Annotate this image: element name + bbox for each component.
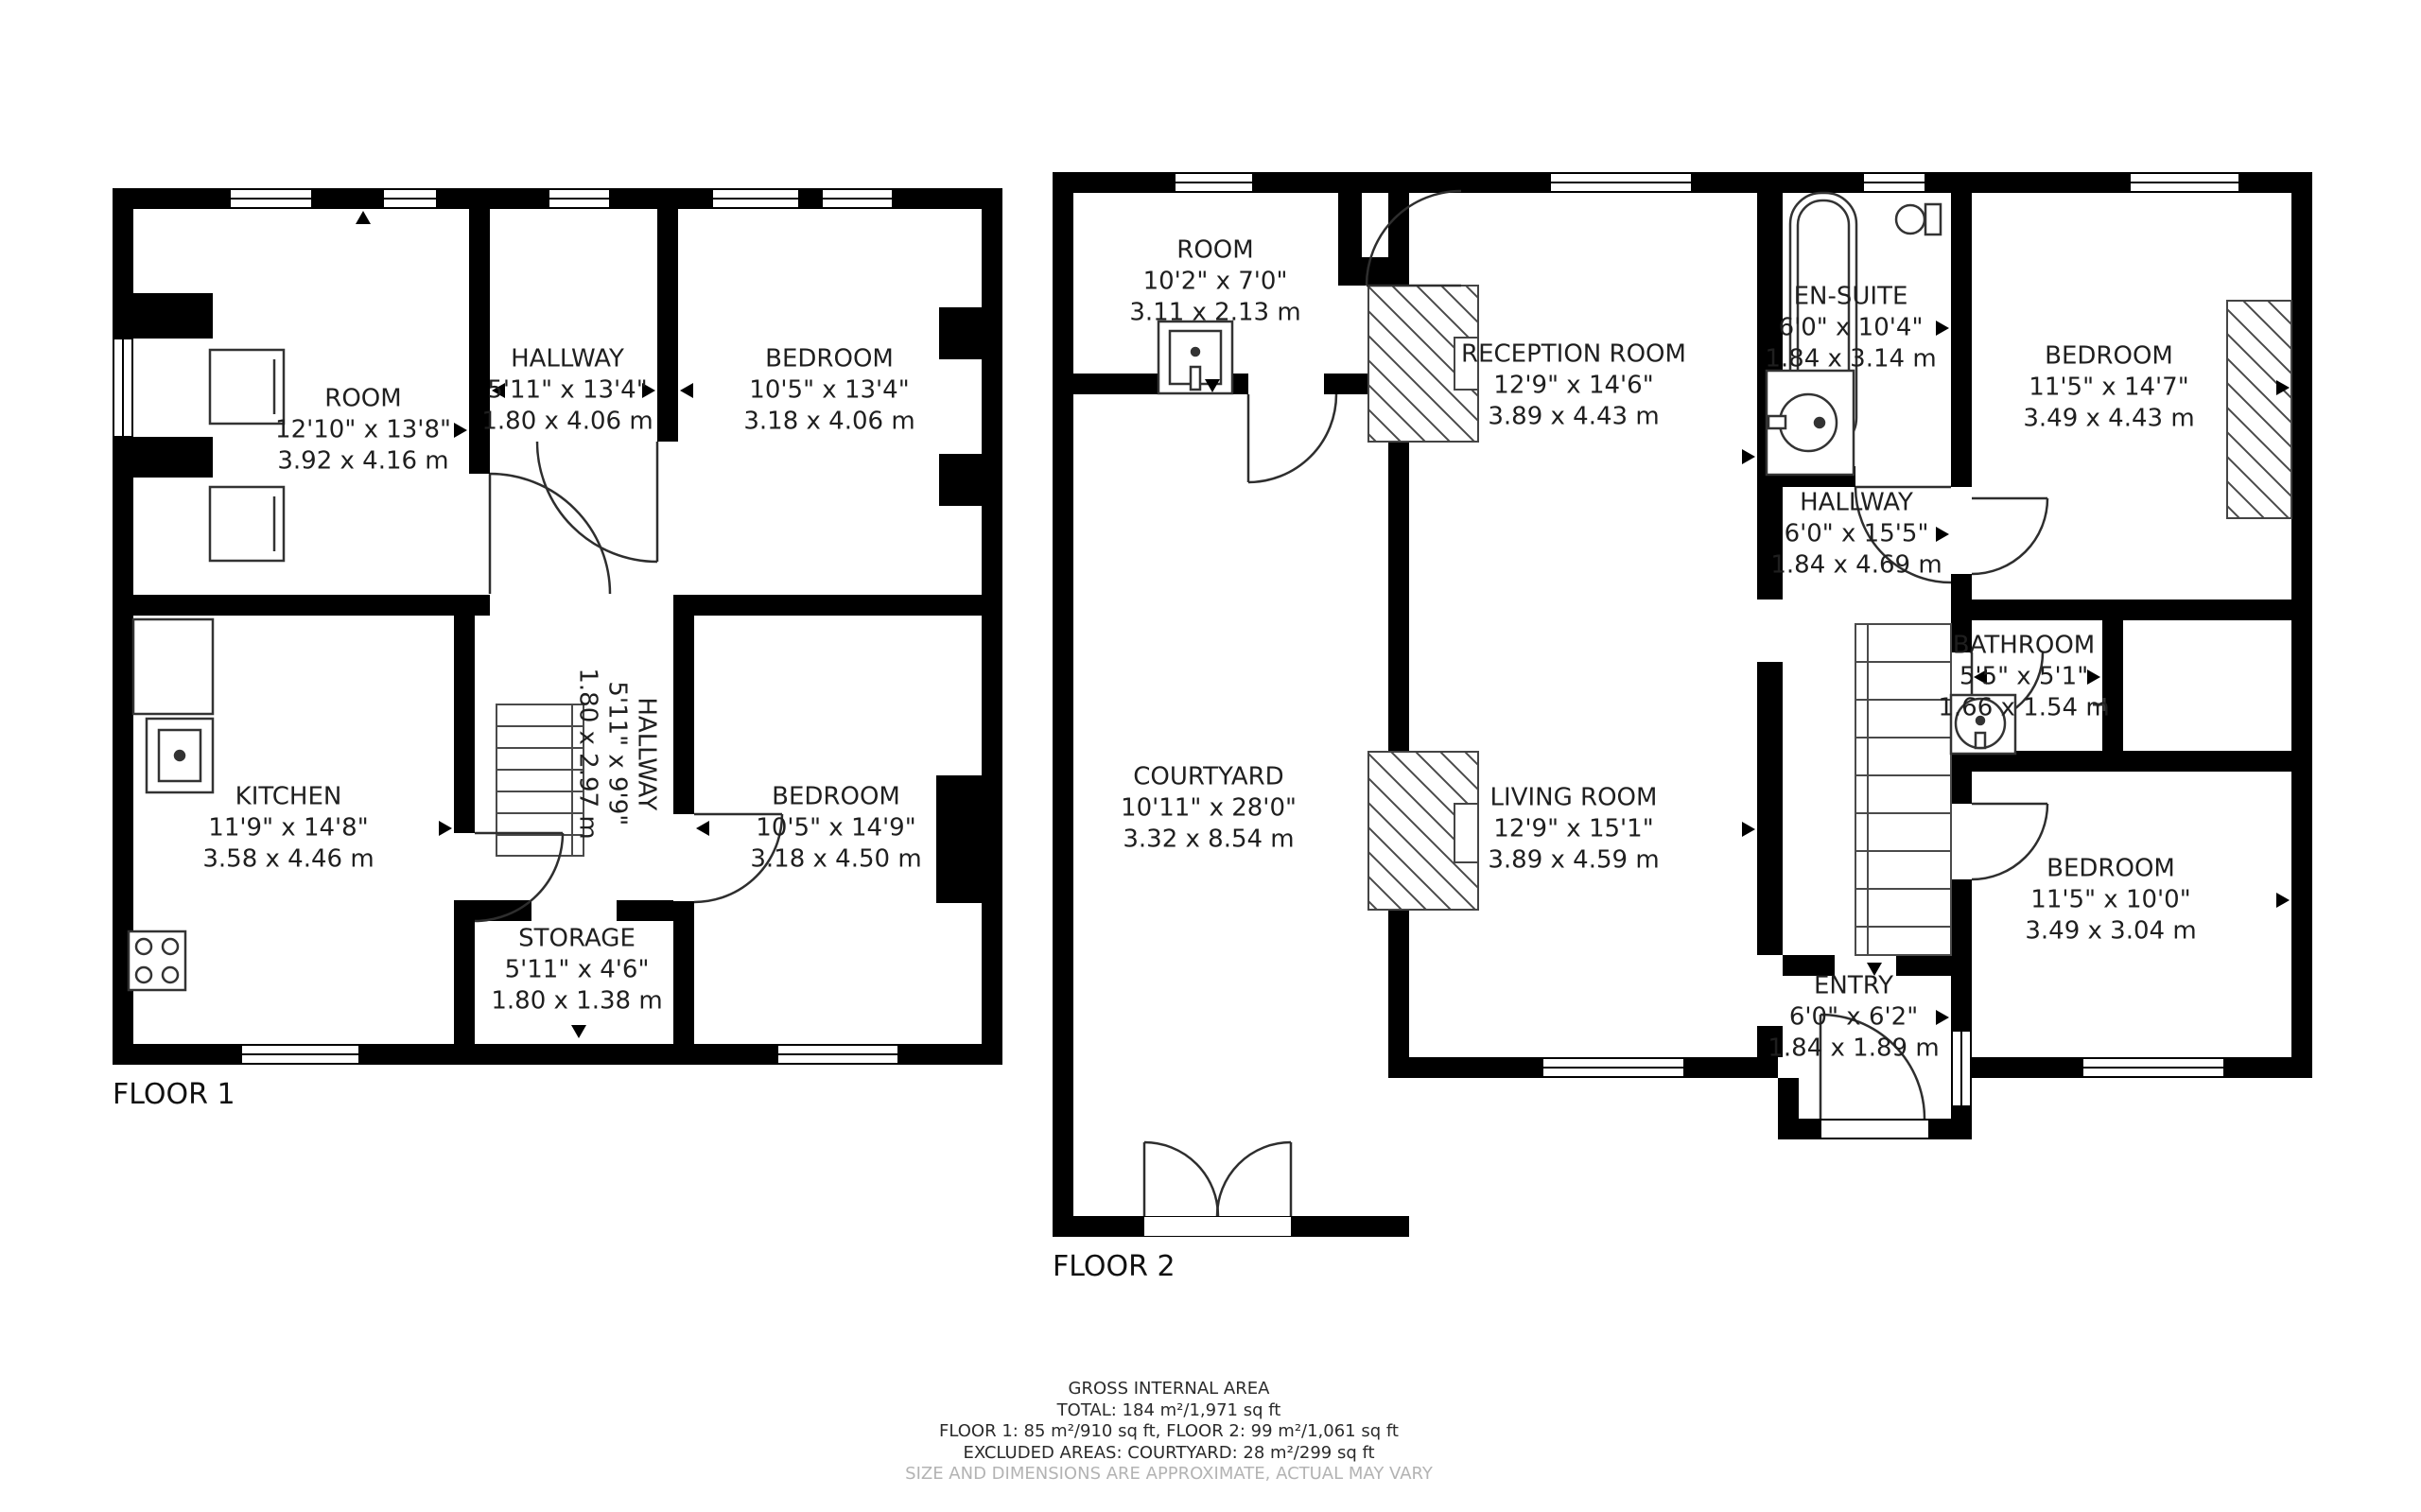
room-imperial: 5'11" x 4'6"	[491, 955, 662, 986]
floor1-label: FLOOR 1	[113, 1078, 235, 1111]
room-metric: 3.49 x 3.04 m	[2025, 916, 2196, 947]
room-imperial: 5'11" x 9'9"	[602, 668, 632, 839]
room-name: BEDROOM	[2023, 341, 2194, 373]
room-imperial: 5'11" x 13'4"	[481, 375, 653, 407]
room-label-f1-storage: STORAGE 5'11" x 4'6" 1.80 x 1.38 m	[491, 924, 662, 1017]
room-label-f2-bedroom-bottom: BEDROOM 11'5" x 10'0" 3.49 x 3.04 m	[2025, 854, 2196, 947]
room-imperial: 12'9" x 14'6"	[1461, 371, 1686, 402]
room-imperial: 10'5" x 13'4"	[743, 375, 914, 407]
area-summary-disclaimer: SIZE AND DIMENSIONS ARE APPROXIMATE, ACT…	[905, 1464, 1433, 1486]
room-imperial: 11'9" x 14'8"	[202, 813, 374, 844]
room-metric: 3.32 x 8.54 m	[1121, 825, 1297, 856]
room-imperial: 12'9" x 15'1"	[1488, 814, 1659, 845]
room-name: EN-SUITE	[1765, 282, 1936, 313]
room-imperial: 6'0" x 6'2"	[1768, 1002, 1939, 1034]
area-summary: GROSS INTERNAL AREA TOTAL: 184 m²/1,971 …	[905, 1379, 1433, 1486]
room-imperial: 10'2" x 7'0"	[1129, 267, 1300, 298]
room-label-f2-entry: ENTRY 6'0" x 6'2" 1.84 x 1.89 m	[1768, 971, 1939, 1065]
room-name: LIVING ROOM	[1488, 783, 1659, 814]
room-metric: 3.89 x 4.59 m	[1488, 845, 1659, 877]
room-label-f2-hallway: HALLWAY 6'0" x 15'5" 1.84 x 4.69 m	[1770, 488, 1942, 582]
room-label-f2-bathroom: BATHROOM 5'5" x 5'1" 1.66 x 1.54 m	[1938, 631, 2109, 724]
room-name: HALLWAY	[1770, 488, 1942, 519]
room-metric: 3.18 x 4.50 m	[750, 844, 921, 876]
room-metric: 1.84 x 3.14 m	[1765, 344, 1936, 375]
floor2-stairs	[1855, 624, 1951, 955]
room-name: KITCHEN	[202, 782, 374, 813]
room-label-f2-bedroom-top: BEDROOM 11'5" x 14'7" 3.49 x 4.43 m	[2023, 341, 2194, 435]
room-name: ROOM	[275, 384, 451, 415]
room-imperial: 11'5" x 10'0"	[2025, 885, 2196, 916]
room-imperial: 10'11" x 28'0"	[1121, 793, 1297, 825]
area-summary-total: TOTAL: 184 m²/1,971 sq ft	[905, 1400, 1433, 1422]
room-metric: 1.66 x 1.54 m	[1938, 693, 2109, 724]
room-name: STORAGE	[491, 924, 662, 955]
room-metric: 3.58 x 4.46 m	[202, 844, 374, 876]
room-name: BEDROOM	[743, 344, 914, 375]
room-metric: 1.80 x 2.97 m	[573, 668, 602, 839]
room-imperial: 10'5" x 14'9"	[750, 813, 921, 844]
area-summary-excluded: EXCLUDED AREAS: COURTYARD: 28 m²/299 sq …	[905, 1443, 1433, 1465]
room-imperial: 6'0" x 15'5"	[1770, 519, 1942, 550]
room-imperial: 6'0" x 10'4"	[1765, 313, 1936, 344]
room-metric: 3.92 x 4.16 m	[275, 446, 451, 478]
room-label-f1-bedroom-top: BEDROOM 10'5" x 13'4" 3.18 x 4.06 m	[743, 344, 914, 438]
room-metric: 3.49 x 4.43 m	[2023, 404, 2194, 435]
room-metric: 1.84 x 4.69 m	[1770, 550, 1942, 582]
room-name: BATHROOM	[1938, 631, 2109, 662]
room-name: ENTRY	[1768, 971, 1939, 1002]
room-label-f2-living: LIVING ROOM 12'9" x 15'1" 3.89 x 4.59 m	[1488, 783, 1659, 877]
room-metric: 1.80 x 1.38 m	[491, 986, 662, 1017]
room-metric: 1.84 x 1.89 m	[1768, 1034, 1939, 1065]
room-name: BEDROOM	[2025, 854, 2196, 885]
room-name: HALLWAY	[632, 668, 661, 839]
room-imperial: 11'5" x 14'7"	[2023, 373, 2194, 404]
floor2-label: FLOOR 2	[1053, 1250, 1176, 1283]
room-metric: 3.18 x 4.06 m	[743, 407, 914, 438]
room-imperial: 12'10" x 13'8"	[275, 415, 451, 446]
room-label-f2-room: ROOM 10'2" x 7'0" 3.11 x 2.13 m	[1129, 235, 1300, 329]
room-label-f2-ensuite: EN-SUITE 6'0" x 10'4" 1.84 x 3.14 m	[1765, 282, 1936, 375]
courtyard-door-gap	[1144, 1217, 1291, 1236]
room-metric: 3.89 x 4.43 m	[1461, 402, 1686, 433]
room-label-f1-hallway-top: HALLWAY 5'11" x 13'4" 1.80 x 4.06 m	[481, 344, 653, 438]
floorplan-drawing	[0, 0, 2421, 1512]
room-name: ROOM	[1129, 235, 1300, 267]
room-metric: 1.80 x 4.06 m	[481, 407, 653, 438]
room-label-f2-courtyard: COURTYARD 10'11" x 28'0" 3.32 x 8.54 m	[1121, 762, 1297, 856]
room-name: RECEPTION ROOM	[1461, 339, 1686, 371]
room-name: HALLWAY	[481, 344, 653, 375]
floorplan-page: ROOM 12'10" x 13'8" 3.92 x 4.16 m HALLWA…	[0, 0, 2421, 1512]
room-name: BEDROOM	[750, 782, 921, 813]
room-imperial: 5'5" x 5'1"	[1938, 662, 2109, 693]
room-label-f2-reception: RECEPTION ROOM 12'9" x 14'6" 3.89 x 4.43…	[1461, 339, 1686, 433]
room-label-f1-bedroom-bottom: BEDROOM 10'5" x 14'9" 3.18 x 4.50 m	[750, 782, 921, 876]
room-label-f1-kitchen: KITCHEN 11'9" x 14'8" 3.58 x 4.46 m	[202, 782, 374, 876]
room-metric: 3.11 x 2.13 m	[1129, 298, 1300, 329]
area-summary-title: GROSS INTERNAL AREA	[905, 1379, 1433, 1400]
area-summary-floors: FLOOR 1: 85 m²/910 sq ft, FLOOR 2: 99 m²…	[905, 1421, 1433, 1443]
room-label-f1-hallway-stairs: HALLWAY 5'11" x 9'9" 1.80 x 2.97 m	[573, 668, 661, 839]
room-label-f1-room: ROOM 12'10" x 13'8" 3.92 x 4.16 m	[275, 384, 451, 478]
room-name: COURTYARD	[1121, 762, 1297, 793]
